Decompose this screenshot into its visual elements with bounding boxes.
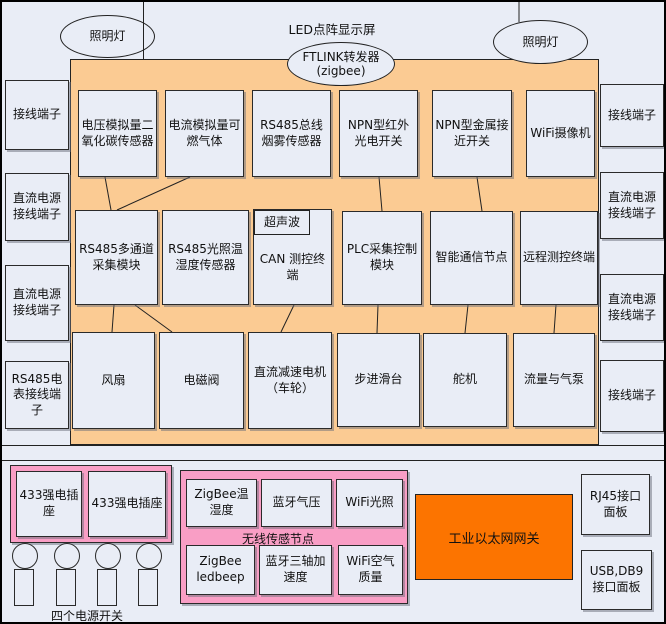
lamp-left-ellipse: 照明灯 xyxy=(60,15,155,58)
current-gas-label: 电流模拟量可燃气体 xyxy=(168,118,241,149)
box-current-gas-sensor: 电流模拟量可燃气体 xyxy=(165,90,244,177)
power-switch-knob-1 xyxy=(12,543,38,569)
left-terminal-block-1: 接线端子 xyxy=(5,80,69,150)
box-remote-terminal: 远程测控终端 xyxy=(520,211,598,305)
rs485-smoke-label: RS485总线烟雾传感器 xyxy=(255,118,328,149)
ultrasonic-label: 超声波 xyxy=(264,215,300,231)
npn-photo-label: NPN型红外光电开关 xyxy=(342,118,415,149)
box-smart-comm-node: 智能通信节点 xyxy=(430,211,513,305)
power-switch-knob-4 xyxy=(136,543,162,569)
left-terminal-1-label: 接线端子 xyxy=(13,107,61,123)
box-fan: 风扇 xyxy=(72,332,155,429)
right-dc-terminal-1-label: 直流电源接线端子 xyxy=(603,190,661,221)
box-voltage-co2-sensor: 电压模拟量二氧化碳传感器 xyxy=(78,90,157,177)
divider-bottom-panel-top xyxy=(2,460,666,461)
power-switch-body-1 xyxy=(14,569,34,606)
zigbee-temp-label: ZigBee温湿度 xyxy=(189,487,254,518)
stepper-slide-label: 步进滑台 xyxy=(354,372,402,388)
npn-proximity-label: NPN型金属接近开关 xyxy=(435,118,509,149)
diagram-canvas: LED点阵显示屏 照明灯 照明灯 FTLINK转发器 (zigbee) 接线端子… xyxy=(0,0,666,624)
power-switch-knob-2 xyxy=(54,543,80,569)
right-terminal-1-label: 接线端子 xyxy=(608,108,656,124)
box-bluetooth-accelerometer: 蓝牙三轴加速度 xyxy=(259,545,332,595)
lamp-left-wire xyxy=(143,2,144,59)
lamp-right-label: 照明灯 xyxy=(522,35,558,49)
left-dc-terminal-2-label: 直流电源接线端子 xyxy=(8,287,66,318)
box-rs485-smoke-sensor: RS485总线烟雾传感器 xyxy=(252,90,331,177)
right-terminal-block-2: 接线端子 xyxy=(600,360,664,432)
power-switch-knob-3 xyxy=(95,543,121,569)
rj45-panel-label: RJ45接口面板 xyxy=(584,489,647,520)
wifi-light-label: WiFi光照 xyxy=(345,495,393,511)
socket-2-label: 433强电插座 xyxy=(92,496,163,512)
led-display-label: LED点阵显示屏 xyxy=(242,19,422,38)
dc-gear-motor-label: 直流减速电机（车轮） xyxy=(251,365,329,396)
box-rs485-multichannel-module: RS485多通道采集模块 xyxy=(75,210,158,305)
box-wifi-air-quality: WiFi空气质量 xyxy=(338,545,403,595)
power-switch-body-2 xyxy=(56,569,76,606)
divider-main-bottom xyxy=(2,445,666,446)
gateway-label: 工业以太网网关 xyxy=(448,528,539,547)
lamp-right-ellipse: 照明灯 xyxy=(493,20,588,64)
bt-pressure-label: 蓝牙气压 xyxy=(272,495,320,511)
left-rs485-meter-terminal: RS485电表接线端子 xyxy=(5,361,69,429)
left-dc-terminal-1: 直流电源接线端子 xyxy=(5,173,69,241)
socket-1-label: 433强电插座 xyxy=(19,488,79,519)
smart-comm-label: 智能通信节点 xyxy=(435,250,507,266)
box-npn-photoelectric-switch: NPN型红外光电开关 xyxy=(339,90,418,177)
power-switch-body-4 xyxy=(138,569,158,606)
box-can-terminal: 超声波 CAN 测控终端 xyxy=(253,209,332,305)
right-dc-terminal-2: 直流电源接线端子 xyxy=(600,274,664,341)
left-dc-terminal-2: 直流电源接线端子 xyxy=(5,265,69,341)
wifi-air-label: WiFi空气质量 xyxy=(341,554,400,585)
fan-label: 风扇 xyxy=(101,373,125,389)
box-usb-db9-panel: USB,DB9接口面板 xyxy=(581,550,652,610)
zigbee-ledbeep-label: ZigBee ledbeep xyxy=(189,554,252,585)
right-dc-terminal-1: 直流电源接线端子 xyxy=(600,172,664,239)
box-solenoid-valve: 电磁阀 xyxy=(159,332,244,429)
usb-db9-panel-label: USB,DB9接口面板 xyxy=(584,564,649,595)
ftlink-label: FTLINK转发器 xyxy=(302,50,379,64)
box-433-socket-2: 433强电插座 xyxy=(88,471,166,537)
box-zigbee-ledbeep: ZigBee ledbeep xyxy=(186,545,255,595)
industrial-ethernet-gateway: 工业以太网网关 xyxy=(415,494,573,580)
box-flow-air-pump: 流量与气泵 xyxy=(513,333,595,427)
box-bluetooth-pressure: 蓝牙气压 xyxy=(261,479,332,527)
power-switch-body-3 xyxy=(97,569,117,606)
voltage-co2-label: 电压模拟量二氧化碳传感器 xyxy=(81,118,154,149)
left-rs485-meter-label: RS485电表接线端子 xyxy=(8,372,66,419)
ftlink-repeater-ellipse: FTLINK转发器 (zigbee) xyxy=(287,42,395,86)
can-terminal-label: CAN 测控终端 xyxy=(256,252,329,283)
box-stepper-slide: 步进滑台 xyxy=(337,333,420,427)
right-dc-terminal-2-label: 直流电源接线端子 xyxy=(603,292,661,323)
box-433-socket-1: 433强电插座 xyxy=(16,471,82,537)
box-plc-control-module: PLC采集控制模块 xyxy=(342,211,422,305)
right-terminal-block-1: 接线端子 xyxy=(600,84,664,147)
servo-label: 舵机 xyxy=(453,372,477,388)
flow-air-pump-label: 流量与气泵 xyxy=(524,372,584,388)
power-switch-caption: 四个电源开关 xyxy=(37,607,137,624)
solenoid-valve-label: 电磁阀 xyxy=(183,373,219,389)
box-zigbee-temp-humidity: ZigBee温湿度 xyxy=(186,479,257,527)
lamp-left-label: 照明灯 xyxy=(89,29,125,43)
box-wifi-light: WiFi光照 xyxy=(336,479,403,527)
ftlink-sub-label: (zigbee) xyxy=(317,64,366,78)
wifi-camera-label: WiFi摄像机 xyxy=(530,126,590,142)
box-rj45-panel: RJ45接口面板 xyxy=(581,474,650,535)
left-dc-terminal-1-label: 直流电源接线端子 xyxy=(8,191,66,222)
box-dc-gear-motor: 直流减速电机（车轮） xyxy=(248,332,332,429)
bt-accel-label: 蓝牙三轴加速度 xyxy=(262,554,329,585)
right-terminal-2-label: 接线端子 xyxy=(608,388,656,404)
box-npn-proximity-switch: NPN型金属接近开关 xyxy=(432,90,512,177)
rs485-multichannel-label: RS485多通道采集模块 xyxy=(78,242,155,273)
plc-control-label: PLC采集控制模块 xyxy=(345,242,419,273)
box-rs485-light-temp-humidity: RS485光照温湿度传感器 xyxy=(162,210,249,305)
box-servo: 舵机 xyxy=(423,333,507,427)
remote-terminal-label: 远程测控终端 xyxy=(523,250,595,266)
ultrasonic-tag: 超声波 xyxy=(254,210,310,235)
box-wifi-camera: WiFi摄像机 xyxy=(526,90,595,177)
rs485-light-label: RS485光照温湿度传感器 xyxy=(165,242,246,273)
